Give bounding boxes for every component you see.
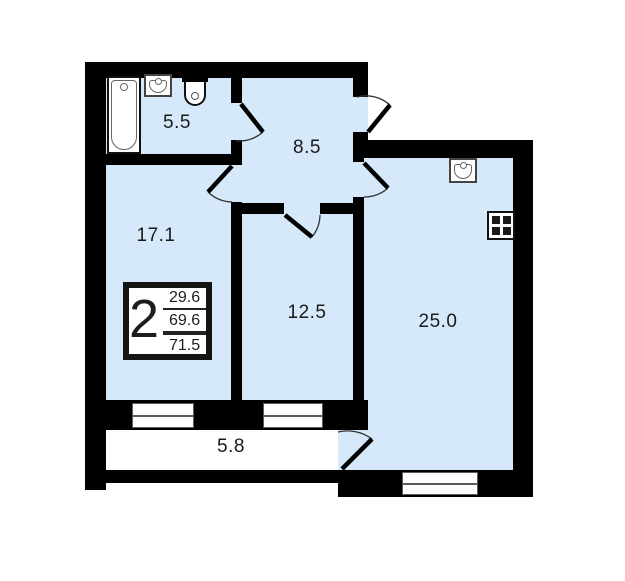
sink-tap	[155, 78, 162, 85]
door-opening-kitchen-living	[353, 162, 364, 197]
window-pane-line	[403, 483, 477, 485]
room-area-label-bathroom: 5.5	[163, 112, 191, 134]
divider-thin	[163, 308, 206, 310]
bathroom-sink-icon	[144, 74, 172, 97]
living-area: 29.6	[169, 288, 200, 307]
divider-thick	[163, 331, 206, 335]
room-area-label-hallway: 8.5	[293, 137, 321, 159]
room-area-label-bedroom: 12.5	[288, 302, 327, 324]
wall-living-bedroom	[231, 202, 242, 400]
wall-balcony-bottom	[85, 470, 338, 483]
door-opening-bathroom	[231, 103, 242, 140]
area-figures: 29.6 69.6 71.5	[163, 288, 206, 355]
stove-burner	[503, 216, 511, 224]
room-area-label-balcony: 5.8	[217, 436, 245, 458]
total-area: 71.5	[169, 336, 200, 355]
window-pane-line	[133, 415, 193, 417]
window	[263, 403, 323, 428]
stove-burner	[503, 227, 511, 235]
door-opening-living-room	[231, 165, 242, 202]
window	[402, 472, 478, 495]
door-opening-entrance	[353, 97, 368, 132]
room-count: 2	[129, 289, 159, 349]
window-pane-line	[264, 415, 322, 417]
door-opening-bedroom	[284, 203, 320, 214]
room-area-label-living-room: 17.1	[137, 225, 176, 247]
floor-plan: 5.5 8.5 17.1 12.5 25.0 5.8 2 29.6 69.6 7…	[0, 0, 625, 581]
wall-kitchen-top	[353, 140, 533, 158]
wall-window-band	[85, 400, 368, 430]
bathtub-icon	[107, 76, 141, 154]
wall-bedroom-kitchen	[353, 197, 364, 400]
wall-right	[513, 140, 533, 497]
toilet-flush	[191, 92, 199, 100]
wall-bath-hall-upper	[231, 78, 242, 103]
room-floor-kitchen-living-ext	[338, 430, 364, 470]
kitchen-sink-icon	[449, 158, 477, 183]
stove-burner	[492, 227, 500, 235]
area-without-balcony: 69.6	[169, 311, 200, 330]
sink-tap	[460, 162, 467, 169]
stove-burner	[492, 216, 500, 224]
door-leaf-entrance	[368, 105, 390, 132]
stove-icon	[487, 211, 515, 240]
apartment-info-box: 2 29.6 69.6 71.5	[123, 282, 212, 360]
wall-bathroom-bottom	[88, 154, 242, 165]
toilet-tank	[182, 72, 208, 82]
bathtub-drain	[120, 83, 128, 91]
toilet-icon	[184, 82, 206, 106]
wall-entrance-upper	[353, 62, 368, 97]
room-area-label-kitchen-living: 25.0	[419, 311, 458, 333]
window	[132, 403, 194, 428]
wall-hallway-bottom-left	[231, 203, 284, 214]
